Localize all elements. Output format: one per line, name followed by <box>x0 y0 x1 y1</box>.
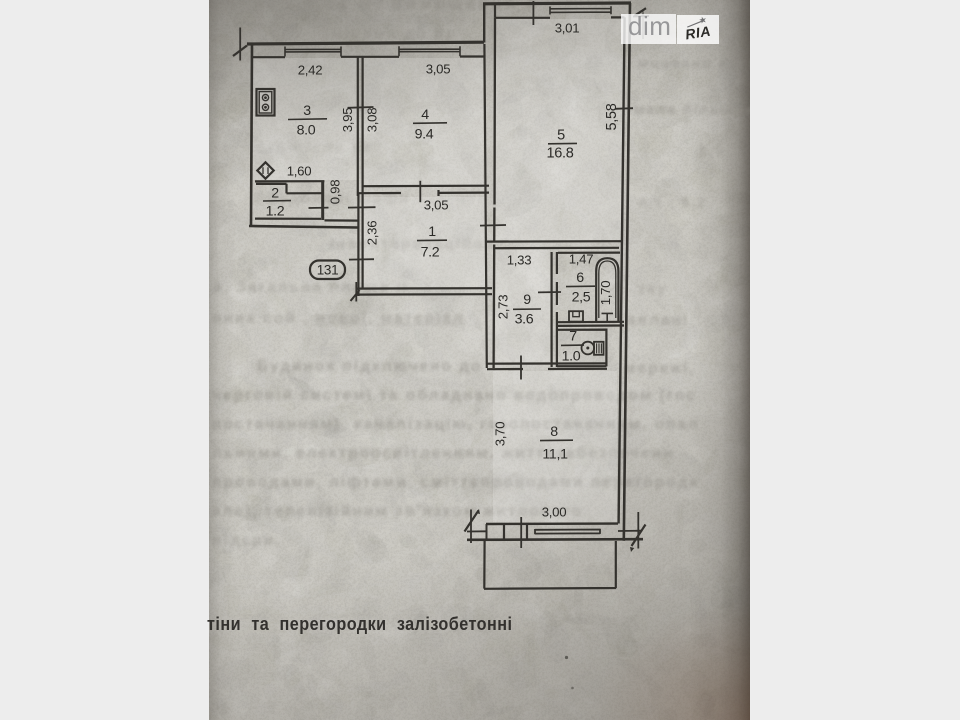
svg-text:8.0: 8.0 <box>297 123 316 139</box>
svg-text:RIA: RIA <box>684 22 712 42</box>
svg-text:9.4: 9.4 <box>415 127 434 143</box>
svg-text:5,58: 5,58 <box>604 103 620 130</box>
svg-text:5: 5 <box>557 128 565 144</box>
svg-text:1: 1 <box>428 224 436 240</box>
svg-text:3,08: 3,08 <box>365 108 380 132</box>
svg-text:1,33: 1,33 <box>507 253 531 268</box>
svg-text:4: 4 <box>421 107 429 123</box>
svg-text:0,98: 0,98 <box>328 180 343 204</box>
svg-text:8: 8 <box>550 424 558 440</box>
svg-text:3,05: 3,05 <box>426 62 450 77</box>
svg-text:3,01: 3,01 <box>555 21 579 36</box>
svg-text:131: 131 <box>317 263 339 278</box>
svg-text:3.6: 3.6 <box>515 312 534 328</box>
svg-text:1,60: 1,60 <box>287 164 311 179</box>
svg-text:11,1: 11,1 <box>542 447 568 463</box>
svg-text:9: 9 <box>523 292 531 308</box>
svg-text:2,36: 2,36 <box>365 221 380 245</box>
svg-text:7.2: 7.2 <box>421 245 440 261</box>
svg-text:3,70: 3,70 <box>493 422 508 446</box>
svg-text:3,95: 3,95 <box>340 108 355 132</box>
svg-text:1.0: 1.0 <box>562 349 581 365</box>
svg-text:7: 7 <box>569 329 577 345</box>
svg-text:3,00: 3,00 <box>542 505 566 520</box>
svg-text:1.2: 1.2 <box>266 204 285 220</box>
svg-text:16.8: 16.8 <box>546 146 573 162</box>
svg-text:6: 6 <box>576 270 584 286</box>
svg-text:2: 2 <box>271 186 279 202</box>
svg-text:1,70: 1,70 <box>598 281 613 305</box>
svg-text:1,47: 1,47 <box>569 252 593 267</box>
svg-text:2,5: 2,5 <box>572 290 591 306</box>
svg-text:2,42: 2,42 <box>298 63 322 78</box>
svg-text:3: 3 <box>303 103 311 119</box>
svg-text:3,05: 3,05 <box>424 198 448 213</box>
svg-text:2,73: 2,73 <box>496 295 511 319</box>
